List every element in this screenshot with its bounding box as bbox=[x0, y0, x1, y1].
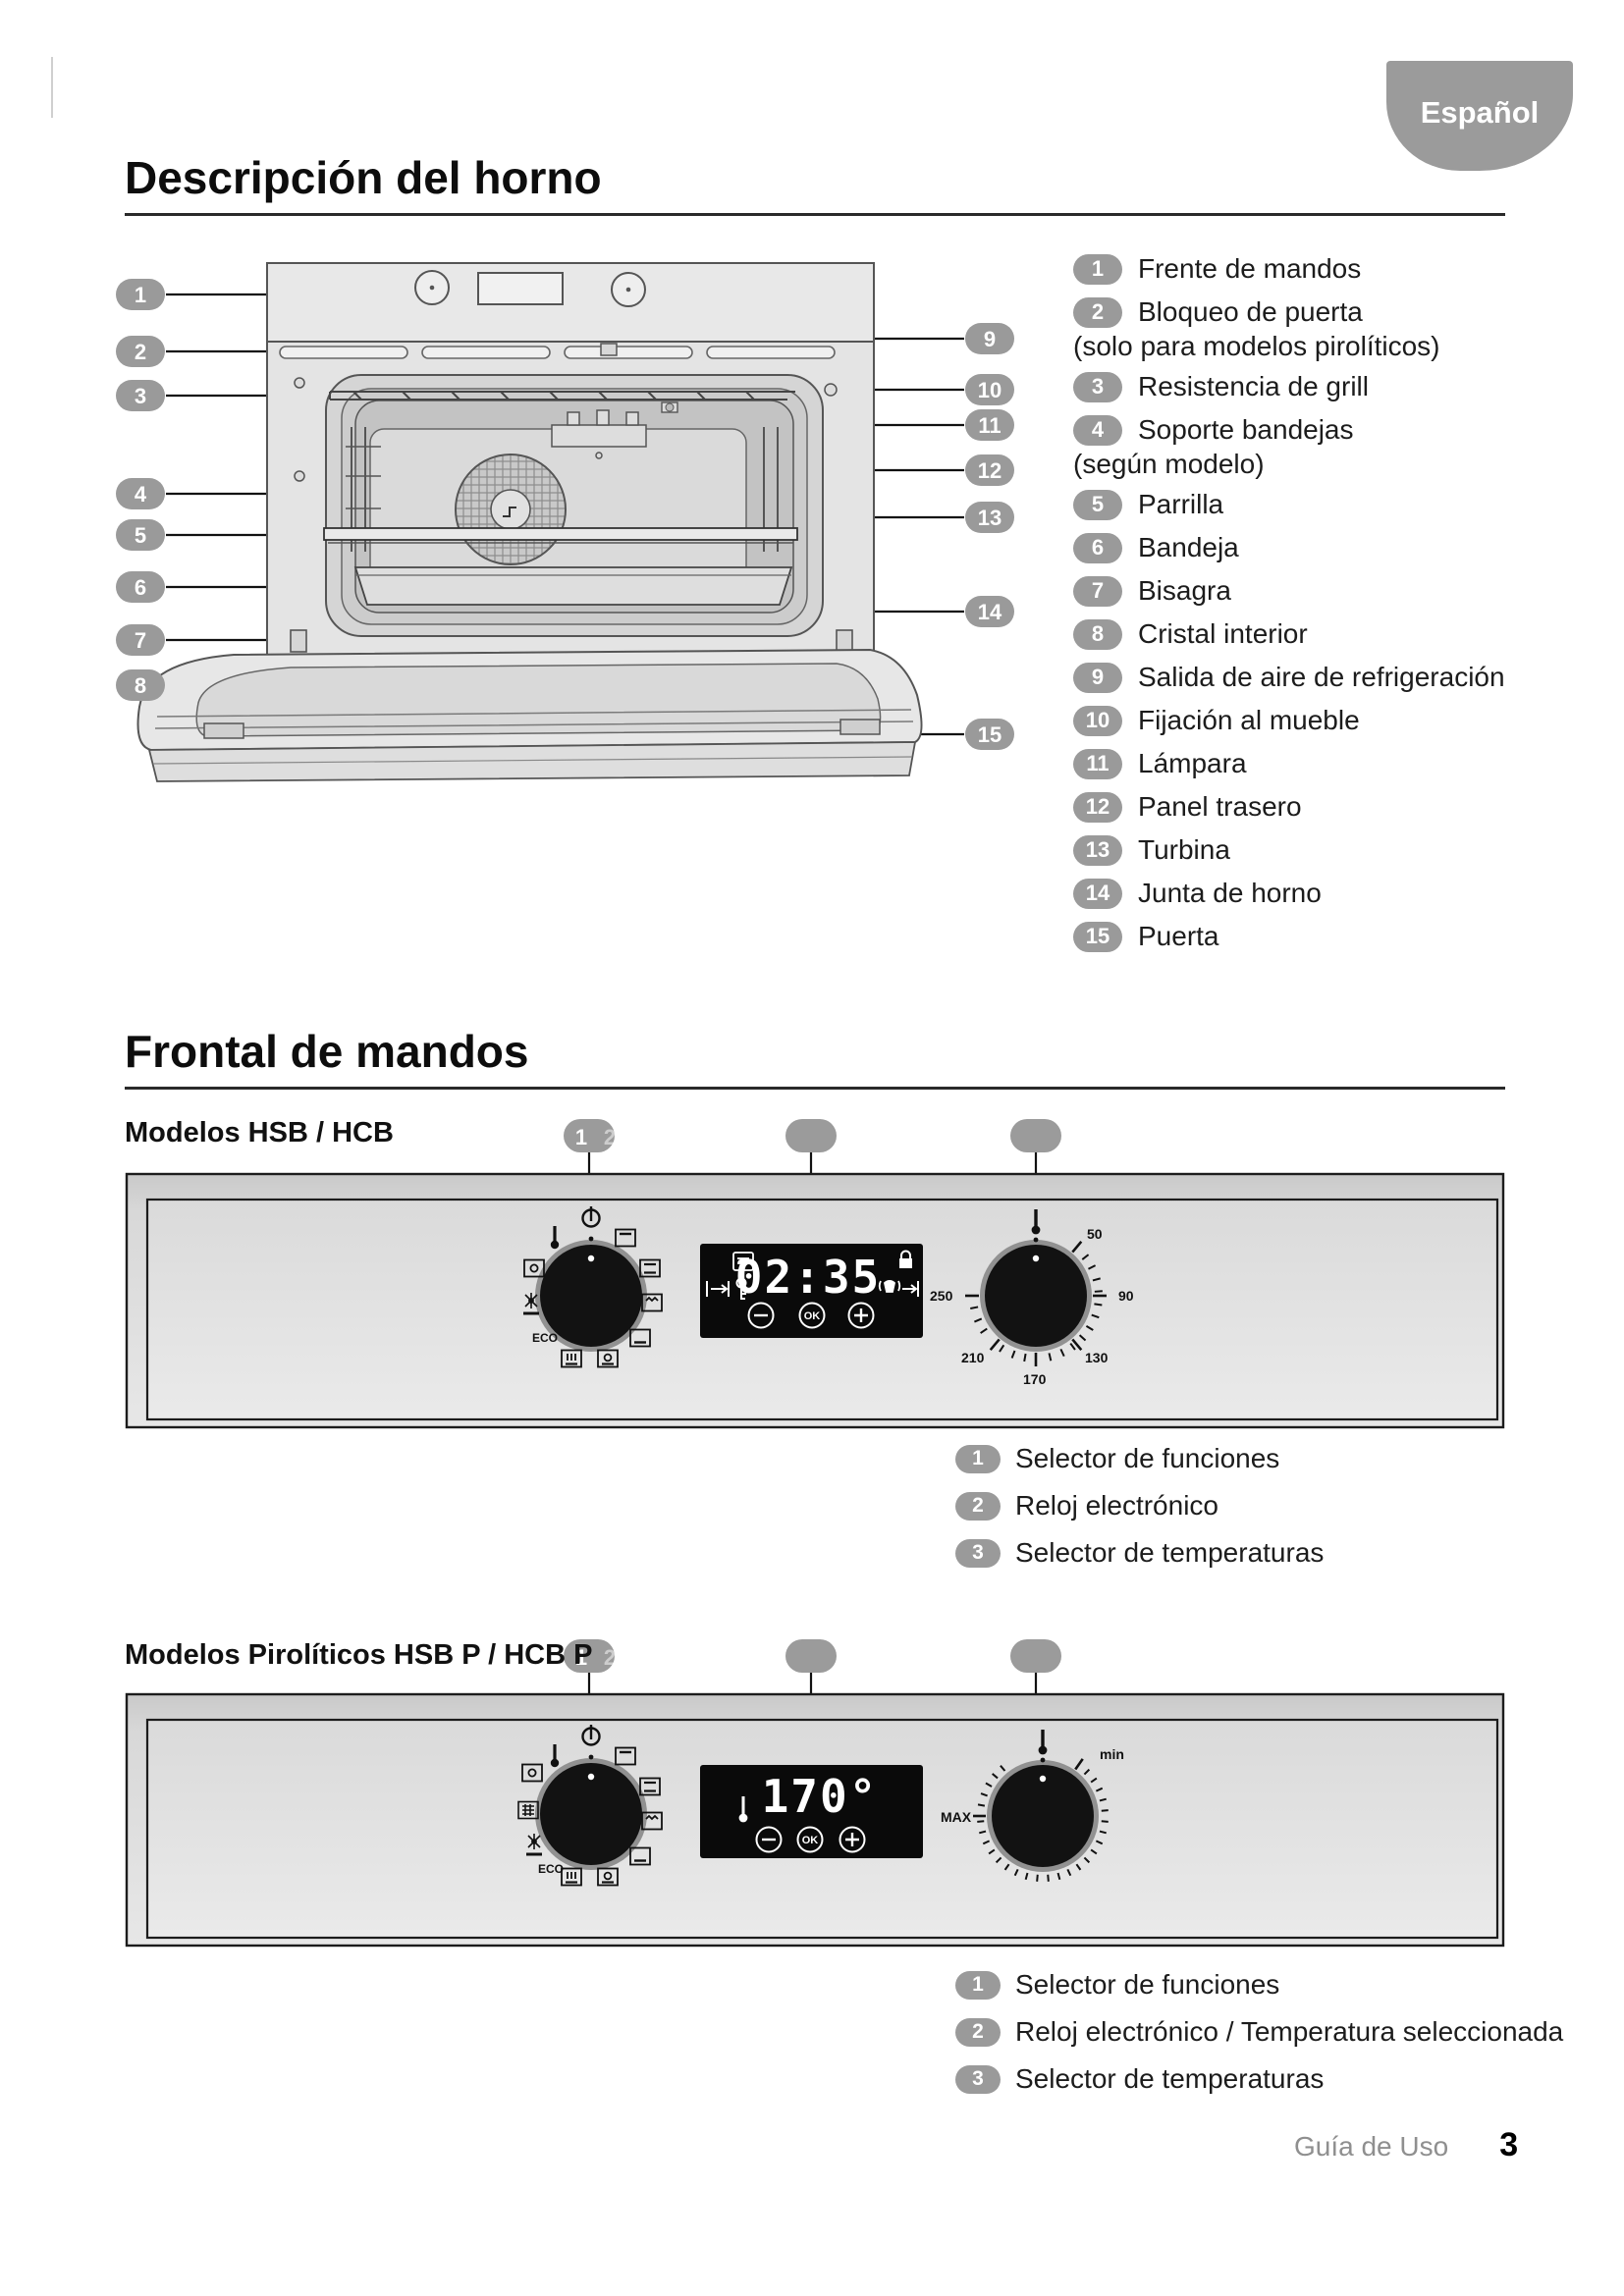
svg-text:12: 12 bbox=[978, 458, 1001, 483]
legend-item: 3Selector de temperaturas bbox=[955, 1537, 1324, 1569]
legend-label: Bisagra bbox=[1138, 575, 1231, 607]
legend-item: 12Panel trasero bbox=[1073, 791, 1623, 823]
fixing-screw bbox=[825, 384, 837, 396]
callout-badge: 8 bbox=[116, 669, 165, 701]
page-number: 3 bbox=[1499, 2126, 1518, 2164]
svg-text:8: 8 bbox=[135, 673, 146, 698]
dial-max-label: MAX bbox=[941, 1809, 972, 1825]
legend-label: Cristal interior bbox=[1138, 618, 1308, 650]
svg-text:210: 210 bbox=[961, 1350, 985, 1365]
svg-text:2: 2 bbox=[604, 1125, 616, 1149]
legend-label: Fijación al mueble bbox=[1138, 705, 1360, 736]
legend-badge: 6 bbox=[1073, 533, 1122, 563]
legend-label: Selector de funciones bbox=[1015, 1969, 1279, 2001]
legend-label: Salida de aire de refrigeración bbox=[1138, 662, 1505, 693]
svg-text:90: 90 bbox=[1118, 1288, 1134, 1304]
screw bbox=[295, 471, 304, 481]
legend-item: 3Selector de temperaturas bbox=[955, 2063, 1563, 2095]
legend-badge: 1 bbox=[955, 1971, 1001, 2000]
subtitle-models-hsb-hcb: Modelos HSB / HCB bbox=[125, 1117, 394, 1149]
svg-text:50: 50 bbox=[1087, 1226, 1103, 1242]
legend-label: Selector de temperaturas bbox=[1015, 2063, 1324, 2095]
svg-text:9: 9 bbox=[984, 327, 996, 351]
callout-badge: 13 bbox=[965, 502, 1014, 533]
callout-badge: 4 bbox=[116, 478, 165, 509]
legend-badge: 2 bbox=[955, 1492, 1001, 1521]
svg-text:OK: OK bbox=[802, 1835, 819, 1846]
legend-item: 8Cristal interior bbox=[1073, 618, 1623, 650]
legend-label: Bandeja bbox=[1138, 532, 1239, 563]
legend-badge: 2 bbox=[1073, 297, 1122, 328]
legend-item: 7Bisagra bbox=[1073, 575, 1623, 607]
callout-badge: 15 bbox=[965, 719, 1014, 750]
legend-label: Selector de funciones bbox=[1015, 1443, 1279, 1474]
svg-text:170: 170 bbox=[1023, 1371, 1047, 1387]
svg-text:6: 6 bbox=[135, 575, 146, 600]
legend-badge: 11 bbox=[1073, 749, 1122, 779]
callout-badge: 14 bbox=[965, 596, 1014, 627]
legend-item: 4Soporte bandejas bbox=[1073, 414, 1623, 446]
door-latch-right bbox=[840, 720, 880, 734]
legend-label: Turbina bbox=[1138, 834, 1230, 866]
legend-item: 6Bandeja bbox=[1073, 532, 1623, 563]
dial-min-label: min bbox=[1100, 1746, 1124, 1762]
legend-label: Puerta bbox=[1138, 921, 1219, 952]
oven-control-strip bbox=[267, 263, 874, 342]
svg-text:14: 14 bbox=[978, 600, 1002, 624]
legend-label: Resistencia de grill bbox=[1138, 371, 1369, 402]
crop-mark bbox=[51, 57, 53, 118]
clock-display: 02:35 OK bbox=[700, 1244, 923, 1338]
open-door bbox=[138, 650, 922, 781]
legend-badge: 15 bbox=[1073, 922, 1122, 952]
legend-badge: 4 bbox=[1073, 415, 1122, 446]
legend-item: 1Selector de funciones bbox=[955, 1443, 1324, 1474]
callout-badge: 12 bbox=[965, 454, 1014, 486]
oven-parts-legend: 1Frente de mandos 2Bloqueo de puerta (so… bbox=[1073, 253, 1623, 964]
callout-badge: 7 bbox=[116, 624, 165, 656]
display-temperature: 170° bbox=[762, 1770, 879, 1823]
callout-badge: 2 bbox=[116, 336, 165, 367]
legend-label: Reloj electrónico bbox=[1015, 1490, 1218, 1522]
manual-page: Español Descripción del horno bbox=[0, 0, 1624, 2296]
svg-text:2: 2 bbox=[135, 340, 146, 364]
svg-text:ECO: ECO bbox=[538, 1862, 564, 1876]
legend-item: 3Resistencia de grill bbox=[1073, 371, 1623, 402]
legend-note: (solo para modelos pirolíticos) bbox=[1073, 332, 1623, 361]
legend-badge: 1 bbox=[1073, 254, 1122, 285]
oven-lamp bbox=[662, 402, 677, 412]
legend-label: Lámpara bbox=[1138, 748, 1247, 779]
legend-label: Frente de mandos bbox=[1138, 253, 1361, 285]
legend-item: 1Selector de funciones bbox=[955, 1969, 1563, 2001]
oven-clock-window bbox=[478, 273, 563, 304]
legend-item: 11Lámpara bbox=[1073, 748, 1623, 779]
control-panel-hsb-hcb: 1 2 bbox=[127, 1119, 1503, 1427]
svg-text:3: 3 bbox=[135, 384, 146, 408]
hinge-right bbox=[837, 630, 852, 652]
legend-item: 2Reloj electrónico bbox=[955, 1490, 1324, 1522]
legend-label: Selector de temperaturas bbox=[1015, 1537, 1324, 1569]
panel2-legend: 1Selector de funciones 2Reloj electrónic… bbox=[955, 1969, 1563, 2110]
callout-badge: 1 bbox=[116, 279, 165, 310]
legend-label: Panel trasero bbox=[1138, 791, 1302, 823]
panel1-legend: 1Selector de funciones 2Reloj electrónic… bbox=[955, 1443, 1324, 1584]
legend-badge: 3 bbox=[955, 2065, 1001, 2094]
legend-item: 2Bloqueo de puerta bbox=[1073, 296, 1623, 328]
legend-badge: 14 bbox=[1073, 879, 1122, 909]
display-time: 02:35 bbox=[735, 1251, 881, 1304]
legend-badge: 7 bbox=[1073, 576, 1122, 607]
diagram-callout-badges-right: 9 10 11 12 13 14 15 bbox=[965, 323, 1014, 750]
legend-item: 14Junta de horno bbox=[1073, 878, 1623, 909]
legend-label: Reloj electrónico / Temperatura seleccio… bbox=[1015, 2016, 1563, 2048]
legend-item: 5Parrilla bbox=[1073, 489, 1623, 520]
legend-badge: 3 bbox=[1073, 372, 1122, 402]
legend-item: 2Reloj electrónico / Temperatura selecci… bbox=[955, 2016, 1563, 2048]
legend-label: Bloqueo de puerta bbox=[1138, 296, 1363, 328]
svg-text:5: 5 bbox=[135, 523, 146, 548]
door-latch-left bbox=[204, 723, 244, 738]
legend-item: 9Salida de aire de refrigeración bbox=[1073, 662, 1623, 693]
oven-diagram: 1 2 3 4 5 6 7 8 9 10 11 12 13 14 15 bbox=[116, 263, 1014, 781]
legend-badge: 9 bbox=[1073, 663, 1122, 693]
language-tab-label: Español bbox=[1421, 95, 1540, 131]
legend-badge: 2 bbox=[955, 2018, 1001, 2047]
legend-item: 15Puerta bbox=[1073, 921, 1623, 952]
svg-text:1: 1 bbox=[575, 1125, 587, 1149]
svg-text:1: 1 bbox=[135, 283, 146, 307]
diagram-callout-badges-left: 1 2 3 4 5 6 7 8 bbox=[116, 279, 165, 701]
legend-item: 13Turbina bbox=[1073, 834, 1623, 866]
callout-badge: 10 bbox=[965, 374, 1014, 405]
svg-text:10: 10 bbox=[978, 378, 1001, 402]
svg-text:4: 4 bbox=[135, 482, 147, 507]
legend-badge: 3 bbox=[955, 1539, 1001, 1568]
callout-badge: 9 bbox=[965, 323, 1014, 354]
legend-item: 1Frente de mandos bbox=[1073, 253, 1623, 285]
screw bbox=[295, 378, 304, 388]
svg-text:11: 11 bbox=[978, 413, 1001, 438]
legend-badge: 12 bbox=[1073, 792, 1122, 823]
legend-badge: 1 bbox=[955, 1445, 1001, 1473]
hinge-left bbox=[291, 630, 306, 652]
legend-badge: 5 bbox=[1073, 490, 1122, 520]
svg-text:2: 2 bbox=[604, 1645, 616, 1670]
svg-text:15: 15 bbox=[978, 722, 1001, 747]
footer-label: Guía de Uso bbox=[1294, 2131, 1448, 2163]
legend-item: 10Fijación al mueble bbox=[1073, 705, 1623, 736]
control-panel-pyrolytic: 1 2 bbox=[127, 1639, 1503, 1946]
legend-label: Junta de horno bbox=[1138, 878, 1322, 909]
turbine-fan bbox=[456, 454, 566, 564]
svg-text:ECO: ECO bbox=[532, 1331, 558, 1345]
legend-badge: 13 bbox=[1073, 835, 1122, 866]
callout-badge: 5 bbox=[116, 519, 165, 551]
temperature-display: 170° OK bbox=[700, 1765, 923, 1858]
page-footer: Guía de Uso 3 bbox=[1294, 2126, 1518, 2164]
section-title-oven-description: Descripción del horno bbox=[125, 155, 1505, 216]
callout-badge: 11 bbox=[965, 409, 1014, 441]
baking-tray bbox=[355, 567, 791, 605]
svg-text:13: 13 bbox=[978, 506, 1001, 530]
subtitle-models-pyrolytic: Modelos Pirolíticos HSB P / HCB P bbox=[125, 1639, 592, 1672]
door-lock bbox=[601, 344, 617, 355]
legend-note: (según modelo) bbox=[1073, 450, 1623, 479]
callout-badge: 3 bbox=[116, 380, 165, 411]
callout-badge: 6 bbox=[116, 571, 165, 603]
legend-label: Soporte bandejas bbox=[1138, 414, 1354, 446]
svg-text:OK: OK bbox=[804, 1310, 821, 1322]
legend-badge: 8 bbox=[1073, 619, 1122, 650]
legend-badge: 10 bbox=[1073, 706, 1122, 736]
oven-drawing bbox=[138, 263, 922, 781]
svg-text:250: 250 bbox=[930, 1288, 953, 1304]
section-title-control-front: Frontal de mandos bbox=[125, 1029, 1505, 1090]
svg-text:130: 130 bbox=[1085, 1350, 1109, 1365]
grill-shelf bbox=[324, 528, 797, 543]
svg-text:7: 7 bbox=[135, 628, 146, 653]
legend-label: Parrilla bbox=[1138, 489, 1223, 520]
